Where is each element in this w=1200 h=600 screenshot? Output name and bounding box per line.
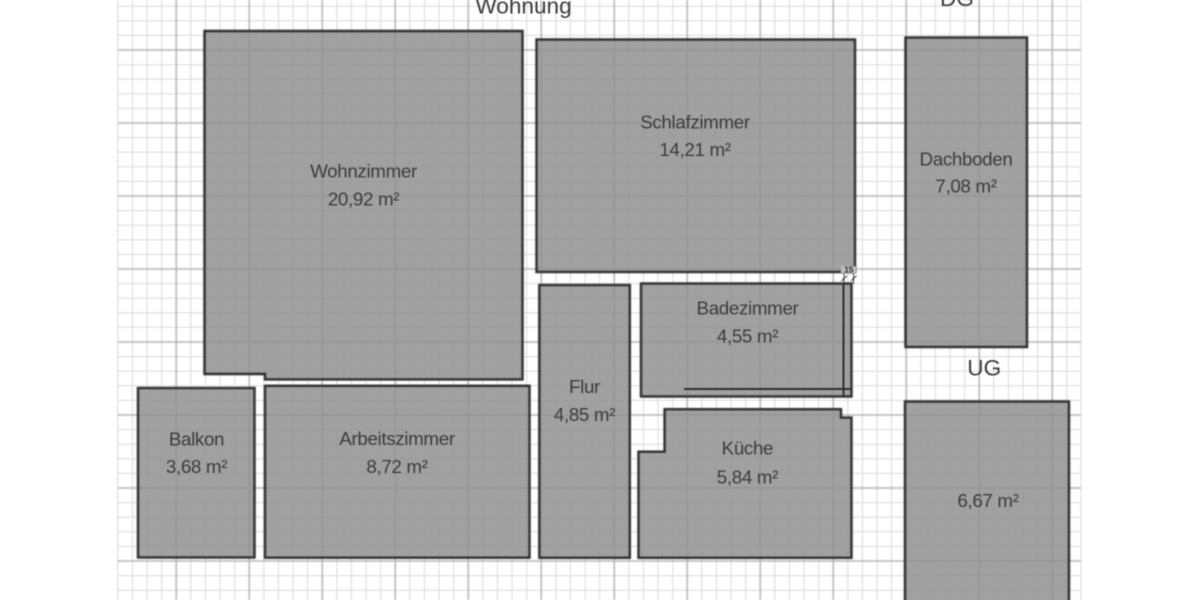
svg-text:Dachboden: Dachboden (920, 149, 1013, 170)
svg-text:Badezimmer: Badezimmer (697, 298, 799, 319)
svg-text:5,84 m²: 5,84 m² (717, 467, 778, 488)
svg-text:DG: DG (940, 0, 974, 11)
svg-text:Flur: Flur (569, 376, 600, 397)
svg-text:15: 15 (844, 265, 854, 275)
svg-text:14,21 m²: 14,21 m² (659, 139, 730, 160)
svg-text:UG: UG (967, 355, 1001, 380)
svg-text:4,85 m²: 4,85 m² (554, 404, 615, 425)
svg-text:Arbeitszimmer: Arbeitszimmer (339, 428, 455, 449)
svg-text:8,72 m²: 8,72 m² (366, 456, 427, 477)
svg-text:Balkon: Balkon (169, 429, 224, 450)
svg-text:Küche: Küche (722, 438, 774, 459)
svg-text:Wohnzimmer: Wohnzimmer (310, 161, 417, 182)
svg-text:Schlafzimmer: Schlafzimmer (640, 112, 750, 133)
svg-text:4,55 m²: 4,55 m² (717, 326, 778, 347)
svg-text:6,67 m²: 6,67 m² (957, 490, 1018, 511)
svg-text:20,92 m²: 20,92 m² (328, 189, 399, 210)
svg-text:7,08 m²: 7,08 m² (935, 176, 996, 197)
svg-text:3,68 m²: 3,68 m² (166, 456, 227, 477)
svg-text:Wohnung: Wohnung (475, 0, 571, 19)
